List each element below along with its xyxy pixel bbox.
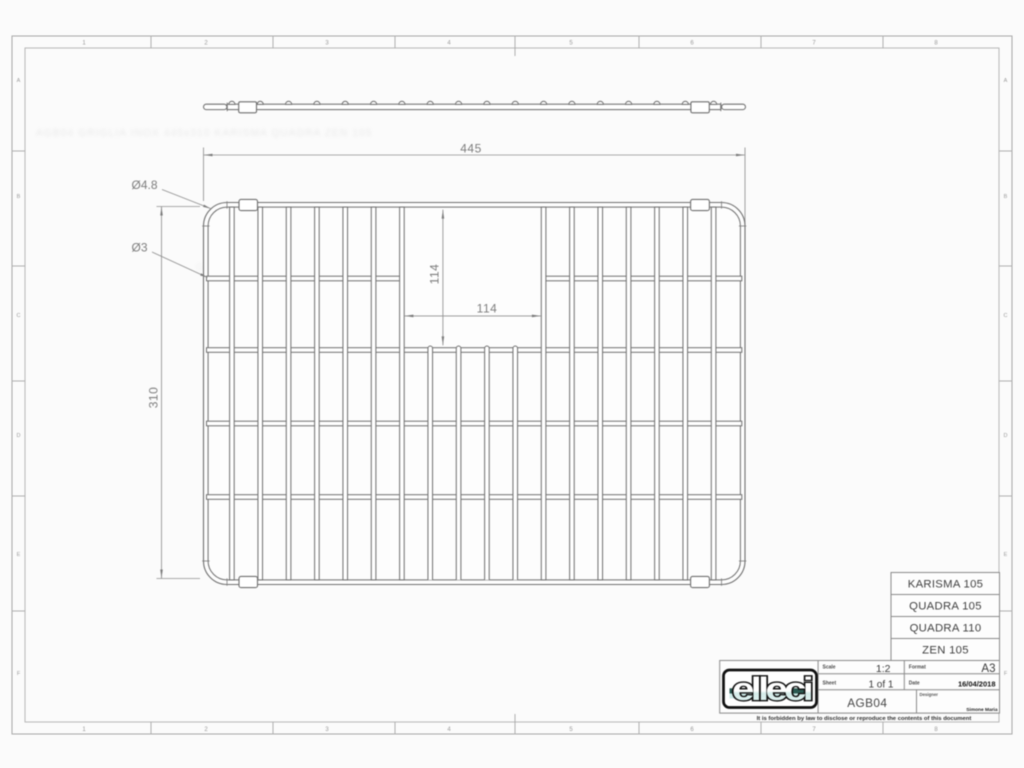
svg-text:6: 6 bbox=[690, 727, 694, 733]
svg-text:7: 7 bbox=[812, 41, 816, 47]
svg-text:It is forbidden by law to disc: It is forbidden by law to disclose or re… bbox=[757, 716, 972, 722]
svg-text:3: 3 bbox=[325, 41, 329, 47]
svg-text:8: 8 bbox=[934, 41, 938, 47]
svg-text:5: 5 bbox=[569, 41, 573, 47]
svg-text:8: 8 bbox=[934, 727, 938, 733]
svg-text:A: A bbox=[17, 78, 21, 84]
svg-text:Ø4.8: Ø4.8 bbox=[132, 178, 158, 192]
svg-text:310: 310 bbox=[147, 387, 161, 409]
svg-text:Ø3: Ø3 bbox=[132, 241, 148, 255]
svg-text:QUADRA 105: QUADRA 105 bbox=[909, 601, 982, 613]
svg-text:1: 1 bbox=[82, 727, 86, 733]
svg-text:AGB04 GRIGLIA INOX 445x310 K: AGB04 GRIGLIA INOX 445x310 KARISMA QUADR… bbox=[36, 128, 373, 139]
svg-text:1:2: 1:2 bbox=[876, 663, 891, 675]
svg-text:3: 3 bbox=[325, 727, 329, 733]
svg-text:Date: Date bbox=[909, 681, 920, 687]
svg-text:B: B bbox=[1004, 194, 1008, 200]
svg-text:6: 6 bbox=[690, 41, 694, 47]
svg-text:2: 2 bbox=[204, 41, 208, 47]
svg-text:114: 114 bbox=[477, 302, 498, 316]
svg-text:7: 7 bbox=[812, 727, 816, 733]
svg-text:C: C bbox=[17, 313, 21, 319]
svg-text:KARISMA 105: KARISMA 105 bbox=[908, 579, 984, 591]
svg-text:Format: Format bbox=[909, 665, 926, 671]
svg-text:F: F bbox=[17, 671, 21, 677]
svg-text:4: 4 bbox=[447, 727, 451, 733]
svg-text:16/04/2018: 16/04/2018 bbox=[958, 679, 996, 688]
svg-text:ZEN 105: ZEN 105 bbox=[922, 645, 969, 657]
svg-text:4: 4 bbox=[447, 41, 451, 47]
svg-text:elleci: elleci bbox=[732, 671, 811, 707]
svg-text:QUADRA 110: QUADRA 110 bbox=[910, 623, 982, 635]
svg-text:114: 114 bbox=[428, 264, 442, 285]
svg-text:2: 2 bbox=[204, 727, 208, 733]
svg-text:C: C bbox=[1004, 313, 1008, 319]
svg-text:Simone Maria: Simone Maria bbox=[966, 707, 998, 713]
svg-text:E: E bbox=[1004, 552, 1008, 558]
svg-text:D: D bbox=[17, 433, 21, 439]
svg-text:B: B bbox=[17, 194, 21, 200]
svg-text:A3: A3 bbox=[981, 663, 995, 675]
svg-text:1: 1 bbox=[82, 41, 86, 47]
svg-text:F: F bbox=[1004, 671, 1008, 677]
svg-text:445: 445 bbox=[460, 142, 482, 156]
svg-text:Designer: Designer bbox=[920, 692, 939, 697]
svg-text:AGB04: AGB04 bbox=[847, 696, 887, 710]
svg-text:5: 5 bbox=[569, 727, 573, 733]
svg-text:E: E bbox=[17, 552, 21, 558]
svg-text:Scale: Scale bbox=[823, 665, 836, 671]
svg-text:1 of 1: 1 of 1 bbox=[868, 680, 893, 691]
svg-text:A: A bbox=[1004, 78, 1008, 84]
svg-text:Sheet: Sheet bbox=[823, 681, 837, 687]
svg-text:D: D bbox=[1004, 433, 1008, 439]
